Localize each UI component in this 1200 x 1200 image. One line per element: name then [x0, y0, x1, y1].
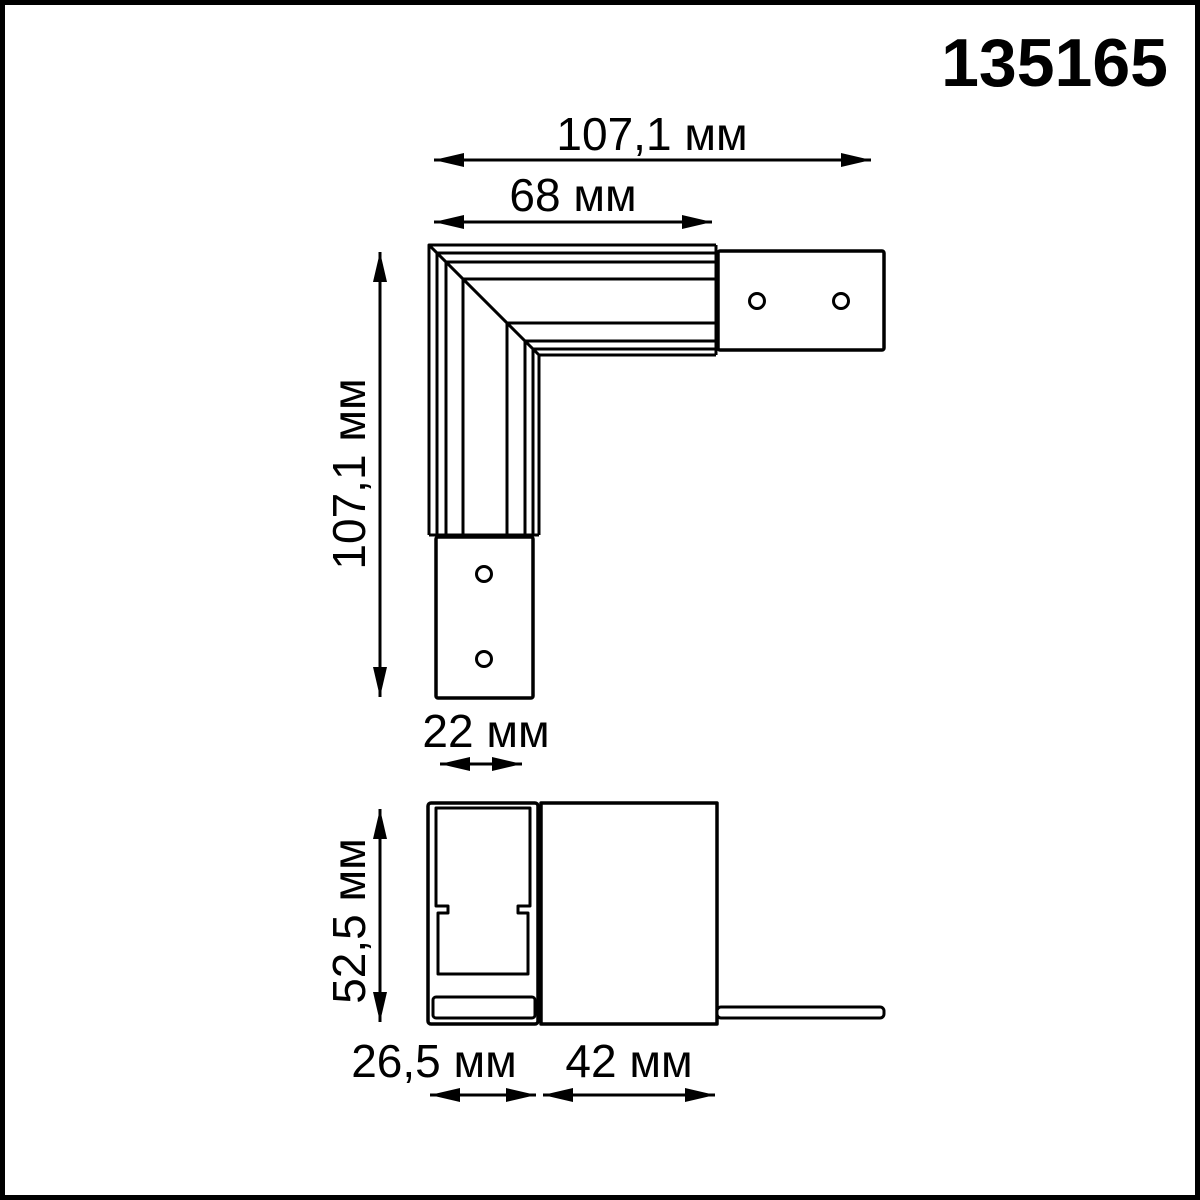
profile-bottom-slot [433, 997, 535, 1018]
dim-label: 107,1 мм [556, 108, 747, 160]
dim-profile-width: 26,5 мм [351, 1035, 536, 1095]
connector-body-section [541, 803, 717, 1024]
profile-line [525, 341, 716, 535]
dim-label: 68 мм [509, 169, 636, 221]
dim-label: 42 мм [565, 1035, 692, 1087]
dim-end-tab-width: 22 мм [422, 705, 549, 764]
dim-corner-arm-width: 68 мм [434, 169, 712, 222]
dim-total-height: 107,1 мм [323, 252, 380, 697]
track-profile-section [428, 803, 538, 1024]
bottom-connector-tab [436, 537, 533, 698]
connector-tab-edge [717, 1007, 884, 1018]
connector-tab-plate [718, 251, 884, 350]
corner-track-profile [429, 245, 716, 535]
drawing-page: 135165 [0, 0, 1200, 1200]
profile-inner-channel [436, 808, 530, 974]
technical-drawing: 135165 [0, 0, 1200, 1200]
connector-tab-plate [436, 537, 533, 698]
profile-line [539, 355, 716, 535]
dim-total-width: 107,1 мм [434, 108, 871, 160]
dim-section-height: 52,5 мм [323, 809, 380, 1022]
dim-label: 26,5 мм [351, 1035, 517, 1087]
profile-line [533, 349, 716, 535]
dim-label: 52,5 мм [323, 838, 375, 1004]
mounting-hole [834, 294, 849, 309]
product-number: 135165 [941, 25, 1168, 101]
dim-label: 107,1 мм [323, 378, 375, 569]
mounting-hole [477, 652, 492, 667]
section-view: 52,5 мм 26,5 мм 42 мм [323, 803, 884, 1095]
mounting-hole [750, 294, 765, 309]
dim-body-width: 42 мм [543, 1035, 715, 1095]
dim-label: 22 мм [422, 705, 549, 757]
mounting-hole [477, 567, 492, 582]
top-view: 107,1 мм 68 мм 107,1 мм 22 мм [323, 108, 884, 764]
right-connector-tab [718, 251, 884, 350]
